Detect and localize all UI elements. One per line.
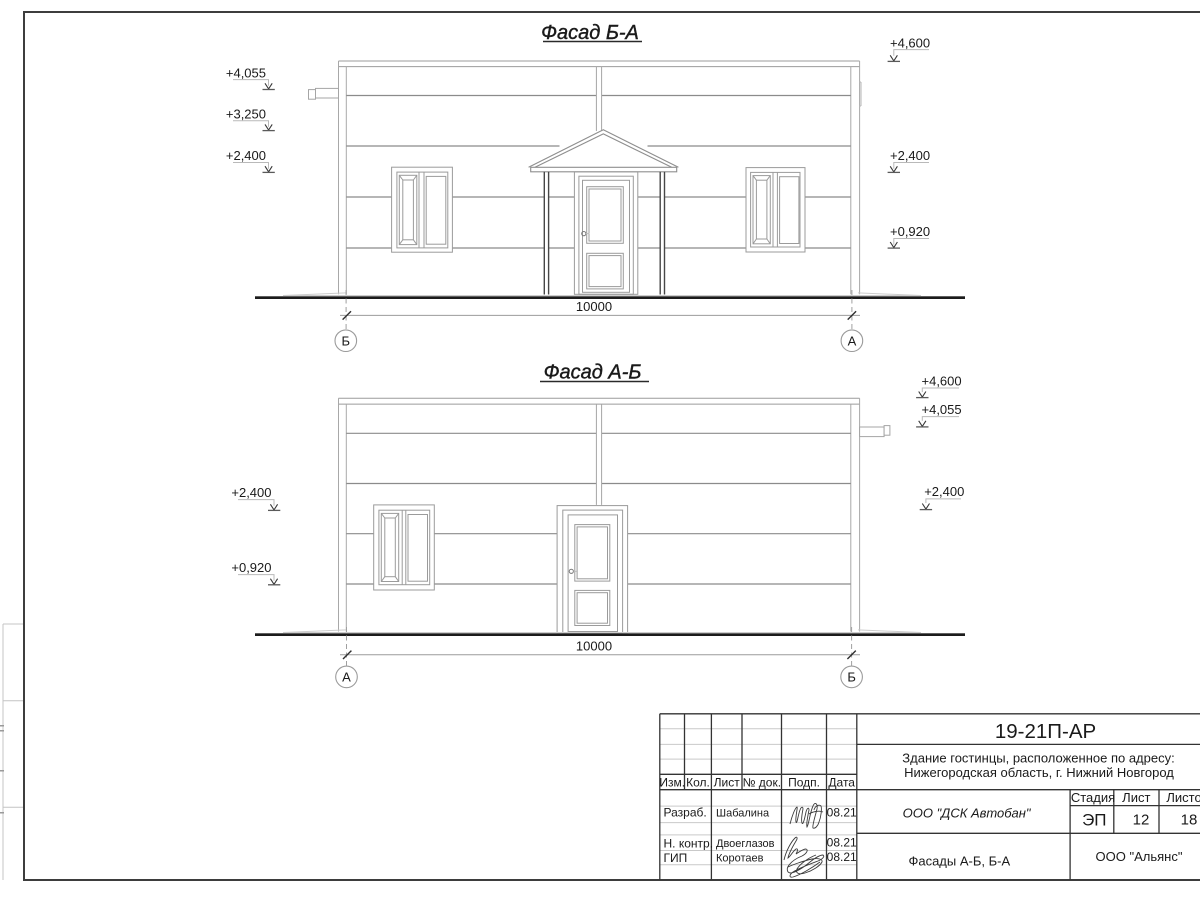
svg-text:+0,920: +0,920 [231, 560, 271, 575]
svg-text:Стадия: Стадия [1071, 790, 1115, 805]
svg-text:ЭП: ЭП [1082, 811, 1106, 830]
svg-text:10000: 10000 [576, 638, 612, 653]
svg-text:Здание гостинцы, расположенное: Здание гостинцы, расположенное по адресу… [902, 751, 1174, 766]
svg-text:Лист: Лист [1122, 790, 1150, 805]
svg-text:Изм.: Изм. [659, 776, 685, 790]
svg-text:12: 12 [1133, 812, 1150, 829]
svg-text:А: А [342, 670, 351, 685]
svg-text:Кол.: Кол. [686, 776, 710, 790]
svg-text:+2,400: +2,400 [226, 148, 266, 163]
svg-text:Дата: Дата [828, 776, 855, 790]
svg-text:Б: Б [342, 333, 351, 348]
svg-text:Фасады А-Б, Б-А: Фасады А-Б, Б-А [908, 853, 1010, 868]
svg-text:Нижегородская область, г. Нижн: Нижегородская область, г. Нижний Новгоро… [904, 765, 1174, 780]
svg-text:19-21П-АР: 19-21П-АР [995, 720, 1096, 743]
svg-text:+4,600: +4,600 [922, 373, 962, 388]
svg-text:08.21: 08.21 [827, 805, 857, 819]
svg-text:ООО "ДСК Автобан": ООО "ДСК Автобан" [903, 805, 1032, 820]
svg-text:Н. контр.: Н. контр. [664, 837, 714, 851]
svg-text:08.21: 08.21 [827, 835, 857, 849]
svg-text:ООО "Альянс": ООО "Альянс" [1096, 849, 1183, 864]
svg-text:ГИП: ГИП [664, 851, 688, 865]
svg-text:Двоеглазов: Двоеглазов [716, 838, 775, 850]
svg-text:+2,400: +2,400 [231, 485, 271, 500]
svg-text:Подп.: Подп. [788, 776, 820, 790]
svg-text:+0,920: +0,920 [890, 224, 930, 239]
svg-text:+2,400: +2,400 [924, 484, 964, 499]
svg-text:+4,055: +4,055 [922, 402, 962, 417]
svg-text:Б: Б [847, 670, 856, 685]
svg-text:+3,250: +3,250 [226, 106, 266, 121]
svg-text:Шабалина: Шабалина [716, 807, 770, 819]
svg-text:А: А [848, 333, 857, 348]
svg-text:+2,400: +2,400 [890, 148, 930, 163]
svg-text:18: 18 [1181, 812, 1198, 829]
svg-text:Листов: Листов [1166, 790, 1200, 805]
svg-text:+4,600: +4,600 [890, 35, 930, 50]
svg-text:№ док.: № док. [743, 776, 781, 790]
svg-text:Разраб.: Разраб. [664, 806, 707, 820]
svg-text:10000: 10000 [576, 299, 612, 314]
svg-text:Лист: Лист [714, 776, 741, 790]
svg-text:Коротаев: Коротаев [716, 853, 764, 865]
svg-text:+4,055: +4,055 [226, 65, 266, 80]
svg-text:08.21: 08.21 [827, 850, 857, 864]
svg-text:Фасад А-Б: Фасад А-Б [544, 362, 642, 384]
